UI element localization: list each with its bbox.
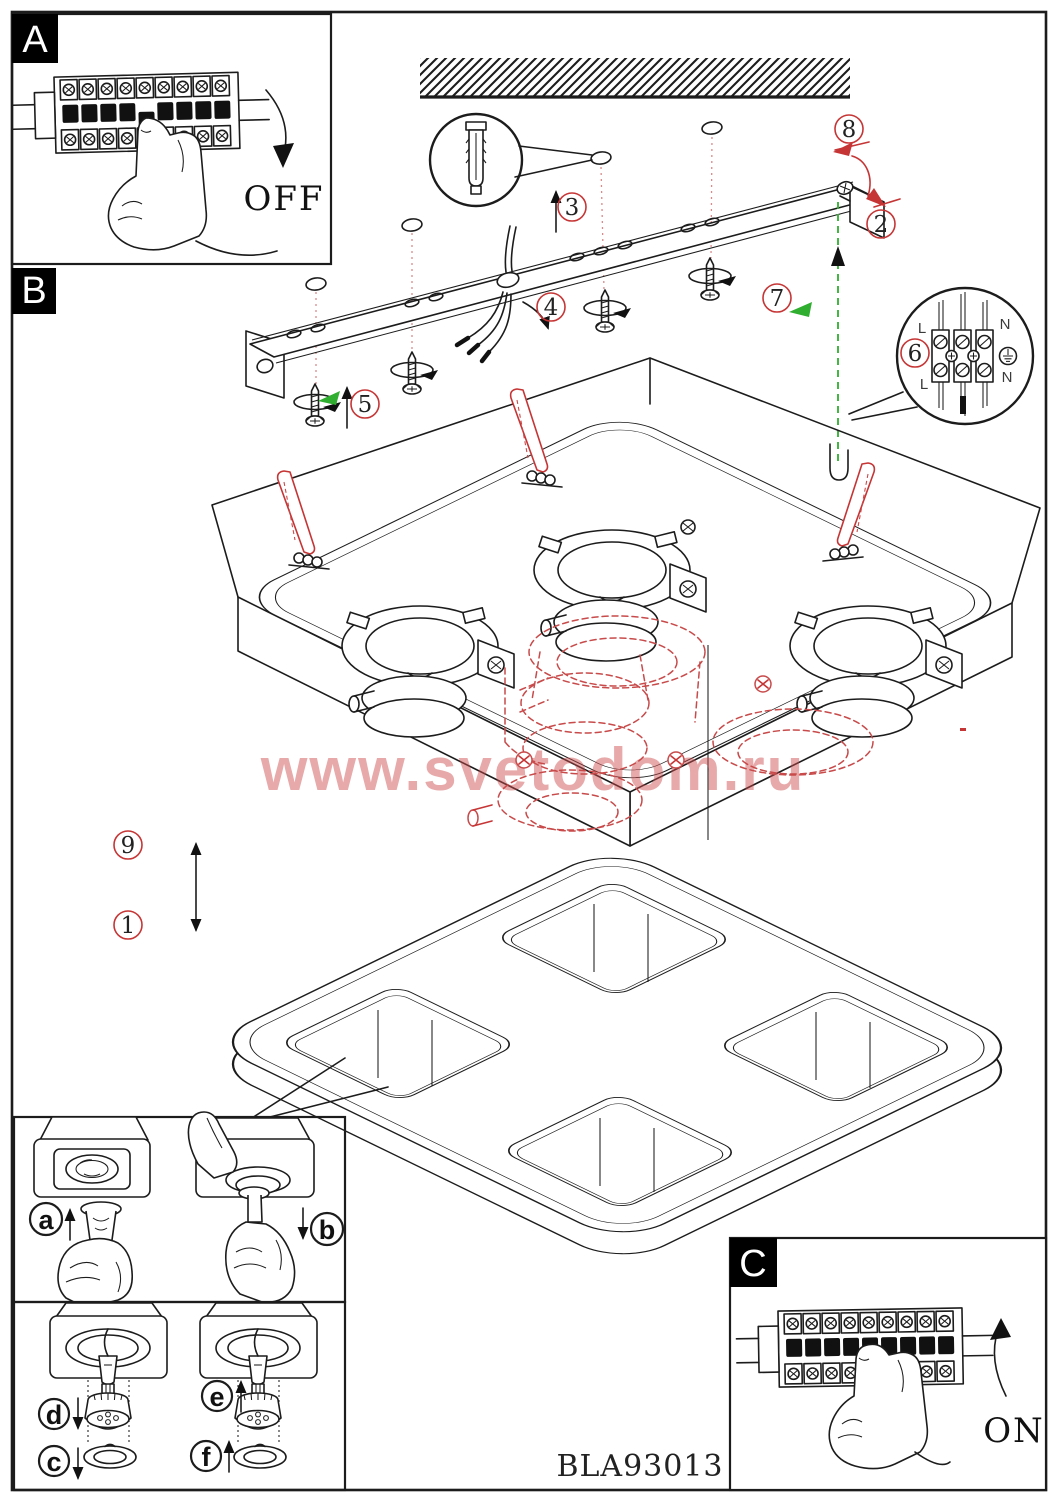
- lamp-body: [208, 846, 1026, 1266]
- svg-text:c: c: [46, 1447, 61, 1477]
- substep-e-badge: e: [202, 1381, 241, 1412]
- svg-text:f: f: [202, 1442, 212, 1472]
- svg-text:3: 3: [565, 195, 580, 221]
- svg-text:5: 5: [358, 392, 373, 418]
- panel-c-label: C: [739, 1243, 766, 1285]
- step-1: 1: [114, 911, 142, 939]
- step-9: 9: [114, 831, 142, 859]
- instruction-sheet: L N L N www.svetodom.ru: [0, 0, 1060, 1500]
- step-5: 5: [351, 390, 379, 418]
- svg-text:4: 4: [544, 295, 559, 321]
- spot-bulb: [85, 1384, 131, 1429]
- step-6: 6: [901, 339, 929, 367]
- wall-anchor-icon: [466, 122, 486, 194]
- hand-with-bulb: [58, 1202, 132, 1304]
- lower-hand-with-bulb: [226, 1187, 295, 1302]
- svg-text:d: d: [46, 1400, 63, 1430]
- fixture-front: [34, 1117, 150, 1197]
- svg-text:8: 8: [842, 117, 857, 143]
- terminal-label-l-bottom: L: [920, 376, 928, 393]
- step-7: 7: [763, 284, 791, 312]
- svg-text:7: 7: [770, 286, 785, 312]
- substep-a-badge: a: [30, 1203, 70, 1240]
- panel-c: C ON: [730, 1238, 1046, 1490]
- panel-a: A OFF: [12, 14, 331, 264]
- diagram-canvas: L N L N www.svetodom.ru: [0, 0, 1060, 1500]
- keyhole-hook: [830, 444, 848, 480]
- svg-text:b: b: [319, 1215, 336, 1245]
- svg-text:2: 2: [874, 212, 889, 238]
- off-label: OFF: [243, 179, 324, 219]
- wall-anchor-detail: [430, 114, 592, 206]
- terminal-label-n-bottom: N: [1002, 369, 1013, 386]
- substep-c-badge: c: [39, 1446, 78, 1478]
- svg-text:9: 9: [121, 833, 136, 859]
- ground-symbol-icon: [1000, 348, 1017, 365]
- step-8: 8: [835, 115, 863, 143]
- lamp-holder: [790, 606, 962, 737]
- svg-text:a: a: [38, 1205, 54, 1235]
- panel-a-label: A: [22, 19, 48, 61]
- svg-text:6: 6: [908, 341, 923, 367]
- svg-text:1: 1: [121, 913, 136, 939]
- svg-text:e: e: [209, 1382, 224, 1412]
- on-label: ON: [983, 1411, 1045, 1451]
- panel-b: B: [12, 268, 56, 314]
- ceiling-hatching: [420, 58, 850, 97]
- bulb-insert-panel: a b: [14, 1112, 345, 1304]
- step-3: 3: [558, 193, 586, 221]
- green-arrow-step5: [318, 391, 340, 405]
- terminal-block-detail: L N L N: [849, 288, 1033, 424]
- up-arrowhead: [831, 246, 845, 266]
- substep-d-badge: d: [39, 1398, 78, 1430]
- panel-b-label: B: [21, 270, 46, 312]
- fixture-exploded-left: [50, 1303, 167, 1468]
- green-arrow-step7: [789, 302, 812, 317]
- hanging-guide: [789, 202, 848, 480]
- terminal-label-n-top: N: [1000, 316, 1011, 333]
- lamp-change-panel: d c e f: [14, 1302, 345, 1490]
- watermark: www.svetodom.ru: [260, 736, 806, 803]
- substep-b-badge: b: [303, 1208, 343, 1245]
- spring-clip: [278, 471, 329, 569]
- retaining-ring: [84, 1445, 136, 1469]
- spot-bulb: [235, 1384, 281, 1429]
- substep-f-badge: f: [191, 1441, 229, 1472]
- step-4: 4: [537, 293, 565, 321]
- product-code: BLA93013: [556, 1449, 723, 1484]
- terminal-label-l-top: L: [918, 320, 926, 337]
- retaining-ring: [234, 1445, 286, 1469]
